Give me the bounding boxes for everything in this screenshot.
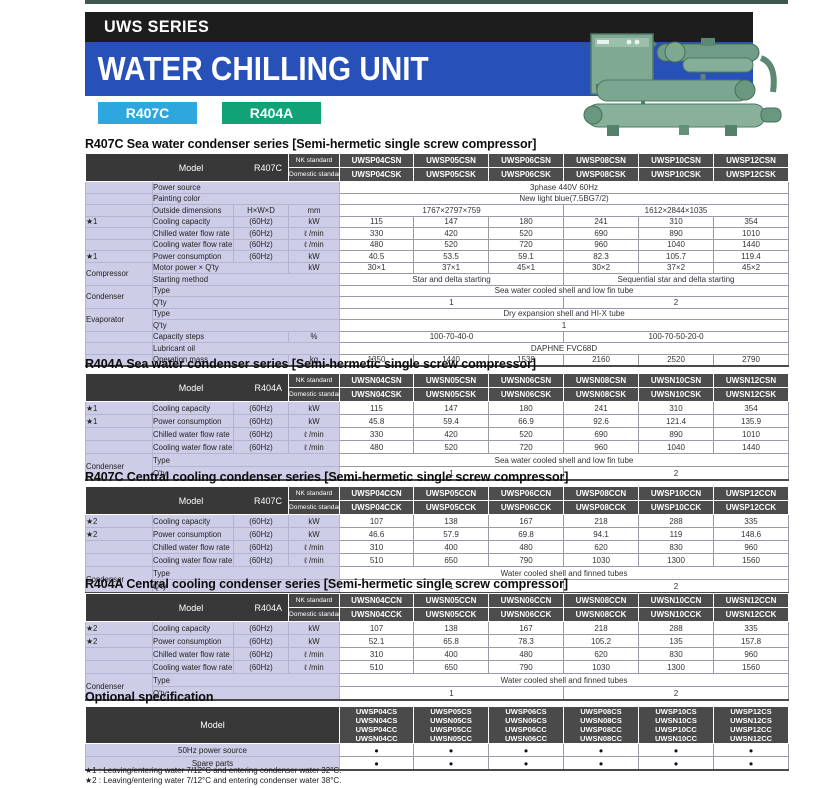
model-header-cell: Model bbox=[86, 707, 340, 744]
domestic-model-name: UWSP05CSK bbox=[414, 168, 489, 182]
spec-row: Cooling water flow rate(60Hz)ℓ /min48052… bbox=[86, 441, 789, 454]
group-cell bbox=[86, 331, 153, 343]
domestic-model-name: UWSN12CCK bbox=[714, 608, 789, 622]
spec-row: ★2Cooling capacity(60Hz)kW10713816721828… bbox=[86, 622, 789, 635]
domestic-model-name: UWSN12CSK bbox=[714, 388, 789, 402]
refrigerant-badge-r404a: R404A bbox=[222, 102, 321, 124]
row-label: Type bbox=[153, 454, 340, 467]
value-cell: 37×2 bbox=[639, 262, 714, 274]
value-cell: 310 bbox=[340, 648, 414, 661]
group-cell bbox=[86, 239, 153, 251]
value-cell: 69.8 bbox=[489, 528, 564, 541]
value-cell-span6: 1 bbox=[340, 320, 789, 332]
value-cell: 180 bbox=[489, 402, 564, 415]
model-code: UWSN12CC bbox=[714, 734, 788, 743]
spec-row: Chilled water flow rate(60Hz)ℓ /min31040… bbox=[86, 648, 789, 661]
row-label: Cooling water flow rate bbox=[153, 441, 234, 454]
unit-label: % bbox=[289, 331, 340, 343]
availability-dot: ● bbox=[564, 744, 639, 757]
footnote-marker: ★2 bbox=[86, 622, 153, 635]
model-code: UWSN10CS bbox=[639, 716, 713, 725]
group-cell bbox=[86, 343, 153, 355]
model-code: UWSN05CS bbox=[414, 716, 488, 725]
value-cell: 1040 bbox=[639, 239, 714, 251]
frequency-label: (60Hz) bbox=[234, 528, 289, 541]
value-cell: 107 bbox=[340, 622, 414, 635]
value-cell: 45×1 bbox=[489, 262, 564, 274]
spec-row: ★1Cooling capacity(60Hz)kW11514718024131… bbox=[86, 216, 789, 228]
nk-model-name: UWSN04CCN bbox=[340, 594, 414, 608]
availability-dot: ● bbox=[414, 757, 489, 771]
group-cell bbox=[86, 554, 153, 567]
model-code: UWSP10CS bbox=[639, 707, 713, 716]
group-cell bbox=[86, 441, 153, 454]
spec-row: Chilled water flow rate(60Hz)ℓ /min33042… bbox=[86, 428, 789, 441]
footnote-marker: ★1 bbox=[86, 402, 153, 415]
value-cell: 119 bbox=[639, 528, 714, 541]
section-title: R404A Central cooling condenser series [… bbox=[85, 577, 788, 591]
value-cell: 135.9 bbox=[714, 415, 789, 428]
group-cell bbox=[86, 182, 153, 194]
frequency-label: (60Hz) bbox=[234, 622, 289, 635]
unit-label: ℓ /min bbox=[289, 541, 340, 554]
value-cell: 115 bbox=[340, 402, 414, 415]
row-label: Cooling capacity bbox=[153, 402, 234, 415]
value-cell: 119.4 bbox=[714, 251, 789, 263]
unit-label: kW bbox=[289, 515, 340, 528]
unit-label: kW bbox=[289, 216, 340, 228]
domestic-model-name: UWSP12CSK bbox=[714, 168, 789, 182]
availability-dot: ● bbox=[564, 757, 639, 771]
model-code: UWSN08CC bbox=[564, 734, 638, 743]
badge-label: R404A bbox=[250, 105, 294, 121]
value-cell: 288 bbox=[639, 515, 714, 528]
optional-row: 50Hz power source●●●●●● bbox=[86, 744, 789, 757]
value-cell: 241 bbox=[564, 402, 639, 415]
domestic-model-name: UWSP08CCK bbox=[564, 501, 639, 515]
model-code: UWSP08CC bbox=[564, 725, 638, 734]
nk-model-name: UWSP04CCN bbox=[340, 487, 414, 501]
spec-row: Chilled water flow rate(60Hz)ℓ /min31040… bbox=[86, 541, 789, 554]
value-cell-span3: Sequential star and delta starting bbox=[564, 274, 789, 286]
section-title-text: R407C Central cooling condenser series bbox=[85, 470, 321, 484]
spec-table-host: ModelR404ANK standardUWSN04CSNUWSN05CSNU… bbox=[85, 373, 788, 481]
model-header-cell: ModelR407C bbox=[86, 154, 289, 182]
spec-table-host: ModelR407CNK standardUWSP04CSNUWSP05CSNU… bbox=[85, 153, 788, 367]
value-cell-span6: DAPHNE FVC68D bbox=[340, 343, 789, 355]
footnote-marker: ★1 bbox=[86, 415, 153, 428]
unit-label: kW bbox=[289, 622, 340, 635]
model-code: UWSN08CS bbox=[564, 716, 638, 725]
spec-row: ★1Power consumption(60Hz)kW45.859.466.99… bbox=[86, 415, 789, 428]
availability-dot: ● bbox=[489, 744, 564, 757]
model-header-cell: ModelR404A bbox=[86, 594, 289, 622]
page-content: UWS SERIES WATER CHILLING UNIT R407C R40… bbox=[85, 0, 788, 788]
value-cell: 135 bbox=[639, 635, 714, 648]
footnotes: ★1 : Leaving/entering water 7/12°C and e… bbox=[85, 766, 341, 785]
value-cell: 480 bbox=[489, 648, 564, 661]
value-cell: 310 bbox=[639, 402, 714, 415]
series-label: UWS SERIES bbox=[85, 17, 209, 37]
row-label: Cooling water flow rate bbox=[153, 661, 234, 674]
nk-model-name: UWSN12CSN bbox=[714, 374, 789, 388]
nk-standard-label: NK standard bbox=[289, 154, 340, 168]
footnote-marker: ★2 bbox=[86, 515, 153, 528]
refrigerant-label: R407C bbox=[254, 163, 282, 173]
value-cell: 59.1 bbox=[489, 251, 564, 263]
chiller-machine-illustration bbox=[584, 34, 781, 136]
value-cell: 960 bbox=[714, 648, 789, 661]
unit-label: kW bbox=[289, 635, 340, 648]
unit-label: ℓ /min bbox=[289, 441, 340, 454]
spec-row: CondenserTypeSea water cooled shell and … bbox=[86, 454, 789, 467]
availability-dot: ● bbox=[714, 757, 789, 771]
section-title: R404A Sea water condenser series [Semi-h… bbox=[85, 357, 788, 371]
spec-row: ★2Power consumption(60Hz)kW46.657.969.89… bbox=[86, 528, 789, 541]
nk-standard-label: NK standard bbox=[289, 594, 340, 608]
nk-model-name: UWSN05CSN bbox=[414, 374, 489, 388]
value-cell: 59.4 bbox=[414, 415, 489, 428]
spec-row: Power source3phase 440V 60Hz bbox=[86, 182, 789, 194]
footnote-2: ★2 : Leaving/entering water 7/12°C and e… bbox=[85, 776, 341, 786]
value-cell: 138 bbox=[414, 622, 489, 635]
value-cell-span6: Sea water cooled shell and low fin tube bbox=[340, 454, 789, 467]
section-title-bracket: [Semi-hermetic single screw compressor] bbox=[324, 577, 568, 591]
spec-row: Outside dimensionsH×W×Dmm1767×2797×75916… bbox=[86, 205, 789, 217]
group-cell bbox=[86, 228, 153, 240]
domestic-model-name: UWSN08CSK bbox=[564, 388, 639, 402]
optional-spec-table: ModelUWSP04CSUWSN04CSUWSP04CCUWSN04CCUWS… bbox=[85, 706, 789, 771]
option-label: 50Hz power source bbox=[86, 744, 340, 757]
row-label: Chilled water flow rate bbox=[153, 428, 234, 441]
model-code: UWSN06CS bbox=[489, 716, 563, 725]
unit-label: kW bbox=[289, 528, 340, 541]
spec-table-r407c: ModelR407CNK standardUWSP04CSNUWSP05CSNU… bbox=[85, 153, 789, 367]
availability-dot: ● bbox=[639, 757, 714, 771]
page-title: WATER CHILLING UNIT bbox=[85, 50, 429, 88]
model-label: Model bbox=[179, 496, 204, 506]
spec-row: ★1Power consumption(60Hz)kW40.553.559.18… bbox=[86, 251, 789, 263]
water-chiller-photo bbox=[583, 24, 790, 138]
model-code-group: UWSP05CSUWSN05CSUWSP05CCUWSN05CC bbox=[414, 707, 489, 744]
unit-label: kW bbox=[289, 251, 340, 263]
row-label: Power consumption bbox=[153, 251, 234, 263]
value-cell: 310 bbox=[639, 216, 714, 228]
value-cell: 1300 bbox=[639, 554, 714, 567]
model-header-cell: ModelR407C bbox=[86, 487, 289, 515]
spec-row: ★2Power consumption(60Hz)kW52.165.878.31… bbox=[86, 635, 789, 648]
row-label: Painting color bbox=[153, 193, 340, 205]
group-cell bbox=[86, 661, 153, 674]
domestic-model-name: UWSN04CCK bbox=[340, 608, 414, 622]
section-title-text: R404A Central cooling condenser series bbox=[85, 577, 320, 591]
frequency-label: H×W×D bbox=[234, 205, 289, 217]
spec-row: CompressorMotor power × Q'tykW30×137×145… bbox=[86, 262, 789, 274]
footnote-marker: ★1 bbox=[86, 251, 153, 263]
value-cell: 66.9 bbox=[489, 415, 564, 428]
value-cell: 1560 bbox=[714, 554, 789, 567]
model-header-cell: ModelR404A bbox=[86, 374, 289, 402]
value-cell-span3: 1767×2797×759 bbox=[340, 205, 564, 217]
section-optional-specification: Optional specification ModelUWSP04CSUWSN… bbox=[85, 690, 788, 771]
footnote-marker: ★1 bbox=[86, 216, 153, 228]
nk-model-name: UWSN04CSN bbox=[340, 374, 414, 388]
domestic-model-name: UWSN10CSK bbox=[639, 388, 714, 402]
frequency-label: (60Hz) bbox=[234, 441, 289, 454]
model-label: Model bbox=[179, 163, 204, 173]
value-cell: 30×2 bbox=[564, 262, 639, 274]
frequency-label: (60Hz) bbox=[234, 402, 289, 415]
availability-dot: ● bbox=[714, 744, 789, 757]
value-cell-span6: Dry expansion shell and HI-X tube bbox=[340, 308, 789, 320]
value-cell: 148.6 bbox=[714, 528, 789, 541]
nk-model-name: UWSP08CSN bbox=[564, 154, 639, 168]
section-title: Optional specification bbox=[85, 690, 788, 704]
row-label: Cooling capacity bbox=[153, 515, 234, 528]
refrigerant-label: R407C bbox=[254, 496, 282, 506]
model-code: UWSP12CC bbox=[714, 725, 788, 734]
spec-row: Cooling water flow rate(60Hz)ℓ /min51065… bbox=[86, 661, 789, 674]
section-r407c-central-cooling: R407C Central cooling condenser series [… bbox=[85, 470, 788, 594]
nk-model-name: UWSP06CSN bbox=[489, 154, 564, 168]
availability-dot: ● bbox=[639, 744, 714, 757]
value-cell: 37×1 bbox=[414, 262, 489, 274]
domestic-model-name: UWSP12CCK bbox=[714, 501, 789, 515]
unit-label: kW bbox=[289, 415, 340, 428]
spec-row: Q'ty1 bbox=[86, 320, 789, 332]
nk-model-name: UWSN08CCN bbox=[564, 594, 639, 608]
value-cell: 147 bbox=[414, 402, 489, 415]
value-cell-span3: 100-70-50-20-0 bbox=[564, 331, 789, 343]
value-cell: 690 bbox=[564, 428, 639, 441]
value-cell: 960 bbox=[564, 239, 639, 251]
value-cell: 400 bbox=[414, 541, 489, 554]
row-label: Lubricant oil bbox=[153, 343, 340, 355]
nk-standard-label: NK standard bbox=[289, 487, 340, 501]
value-cell: 1440 bbox=[714, 239, 789, 251]
value-cell: 107 bbox=[340, 515, 414, 528]
value-cell: 890 bbox=[639, 228, 714, 240]
availability-dot: ● bbox=[489, 757, 564, 771]
row-label: Capacity steps bbox=[153, 331, 289, 343]
domestic-model-name: UWSN05CCK bbox=[414, 608, 489, 622]
nk-standard-label: NK standard bbox=[289, 374, 340, 388]
unit-label: ℓ /min bbox=[289, 648, 340, 661]
value-cell: 46.6 bbox=[340, 528, 414, 541]
value-cell: 105.7 bbox=[639, 251, 714, 263]
frequency-label: (60Hz) bbox=[234, 415, 289, 428]
section-r407c-sea-water: R407C Sea water condenser series [Semi-h… bbox=[85, 137, 788, 367]
domestic-standard-label: Domestic standard bbox=[289, 168, 340, 182]
value-cell: 650 bbox=[414, 554, 489, 567]
value-cell: 650 bbox=[414, 661, 489, 674]
optional-table-host: ModelUWSP04CSUWSN04CSUWSP04CCUWSN04CCUWS… bbox=[85, 706, 788, 771]
nk-model-name: UWSN10CCN bbox=[639, 594, 714, 608]
nk-model-name: UWSP10CSN bbox=[639, 154, 714, 168]
section-title-bracket: [Semi-hermetic single screw compressor] bbox=[292, 137, 536, 151]
model-label: Model bbox=[179, 383, 204, 393]
value-cell: 720 bbox=[489, 239, 564, 251]
nk-model-name: UWSN05CCN bbox=[414, 594, 489, 608]
value-cell: 45.8 bbox=[340, 415, 414, 428]
row-label: Type bbox=[153, 308, 340, 320]
row-label: Q'ty bbox=[153, 297, 340, 309]
domestic-model-name: UWSP06CSK bbox=[489, 168, 564, 182]
unit-label: kW bbox=[289, 402, 340, 415]
value-cell: 400 bbox=[414, 648, 489, 661]
model-code: UWSN06CC bbox=[489, 734, 563, 743]
model-code: UWSP06CS bbox=[489, 707, 563, 716]
domestic-model-name: UWSN04CSK bbox=[340, 388, 414, 402]
row-label: Chilled water flow rate bbox=[153, 648, 234, 661]
frequency-label: (60Hz) bbox=[234, 661, 289, 674]
value-cell: 1010 bbox=[714, 428, 789, 441]
spec-row: ★2Cooling capacity(60Hz)kW10713816721828… bbox=[86, 515, 789, 528]
model-code: UWSP10CC bbox=[639, 725, 713, 734]
value-cell: 147 bbox=[414, 216, 489, 228]
spec-row: Cooling water flow rate(60Hz)ℓ /min48052… bbox=[86, 239, 789, 251]
value-cell: 354 bbox=[714, 216, 789, 228]
nk-model-name: UWSP05CCN bbox=[414, 487, 489, 501]
value-cell: 1010 bbox=[714, 228, 789, 240]
row-label: Cooling water flow rate bbox=[153, 239, 234, 251]
footnote-1: ★1 : Leaving/entering water 7/12°C and e… bbox=[85, 766, 341, 776]
section-title-bracket: [Semi-hermetic single screw compressor] bbox=[324, 470, 568, 484]
value-cell: 720 bbox=[489, 441, 564, 454]
value-cell: 790 bbox=[489, 661, 564, 674]
value-cell-span6: Sea water cooled shell and low fin tube bbox=[340, 285, 789, 297]
domestic-model-name: UWSP08CSK bbox=[564, 168, 639, 182]
value-cell-span3: 2 bbox=[564, 297, 789, 309]
nk-model-name: UWSN06CSN bbox=[489, 374, 564, 388]
availability-dot: ● bbox=[340, 757, 414, 771]
value-cell: 520 bbox=[414, 239, 489, 251]
value-cell: 138 bbox=[414, 515, 489, 528]
domestic-model-name: UWSP10CCK bbox=[639, 501, 714, 515]
nk-model-name: UWSN08CSN bbox=[564, 374, 639, 388]
frequency-label: (60Hz) bbox=[234, 648, 289, 661]
value-cell: 1300 bbox=[639, 661, 714, 674]
domestic-standard-label: Domestic standard bbox=[289, 501, 340, 515]
domestic-model-name: UWSN06CSK bbox=[489, 388, 564, 402]
row-label: Motor power × Q'ty bbox=[153, 262, 289, 274]
frequency-label: (60Hz) bbox=[234, 239, 289, 251]
value-cell: 218 bbox=[564, 622, 639, 635]
spec-row: ★1Cooling capacity(60Hz)kW11514718024131… bbox=[86, 402, 789, 415]
value-cell: 53.5 bbox=[414, 251, 489, 263]
unit-label: ℓ /min bbox=[289, 661, 340, 674]
value-cell: 1030 bbox=[564, 661, 639, 674]
value-cell: 330 bbox=[340, 428, 414, 441]
row-label: Cooling capacity bbox=[153, 622, 234, 635]
value-cell-span3: 1 bbox=[340, 297, 564, 309]
section-title-text: R404A Sea water condenser series bbox=[85, 357, 288, 371]
nk-model-name: UWSP04CSN bbox=[340, 154, 414, 168]
value-cell: 1440 bbox=[714, 441, 789, 454]
value-cell: 480 bbox=[340, 441, 414, 454]
row-label: Cooling capacity bbox=[153, 216, 234, 228]
frequency-label: (60Hz) bbox=[234, 541, 289, 554]
value-cell: 310 bbox=[340, 541, 414, 554]
domestic-model-name: UWSN06CCK bbox=[489, 608, 564, 622]
frequency-label: (60Hz) bbox=[234, 251, 289, 263]
row-label: Q'ty bbox=[153, 320, 340, 332]
footnote-marker: ★2 bbox=[86, 635, 153, 648]
row-label: Power consumption bbox=[153, 415, 234, 428]
value-cell-span3: Star and delta starting bbox=[340, 274, 564, 286]
value-cell: 510 bbox=[340, 554, 414, 567]
value-cell: 288 bbox=[639, 622, 714, 635]
row-label: Chilled water flow rate bbox=[153, 541, 234, 554]
value-cell: 690 bbox=[564, 228, 639, 240]
domestic-model-name: UWSP10CSK bbox=[639, 168, 714, 182]
domestic-model-name: UWSN10CCK bbox=[639, 608, 714, 622]
domestic-model-name: UWSN05CSK bbox=[414, 388, 489, 402]
nk-model-name: UWSN12CCN bbox=[714, 594, 789, 608]
value-cell: 65.8 bbox=[414, 635, 489, 648]
model-code-group: UWSP10CSUWSN10CSUWSP10CCUWSN10CC bbox=[639, 707, 714, 744]
spec-row: EvaporatorTypeDry expansion shell and HI… bbox=[86, 308, 789, 320]
domestic-model-name: UWSP05CCK bbox=[414, 501, 489, 515]
value-cell: 40.5 bbox=[340, 251, 414, 263]
value-cell: 167 bbox=[489, 515, 564, 528]
spec-table-host: ModelR404ANK standardUWSN04CCNUWSN05CCNU… bbox=[85, 593, 788, 701]
value-cell: 960 bbox=[564, 441, 639, 454]
model-code: UWSP06CC bbox=[489, 725, 563, 734]
value-cell: 45×2 bbox=[714, 262, 789, 274]
top-accent-strip bbox=[85, 0, 788, 4]
value-cell: 480 bbox=[340, 239, 414, 251]
value-cell-span6: 3phase 440V 60Hz bbox=[340, 182, 789, 194]
value-cell: 520 bbox=[489, 428, 564, 441]
spec-table-r404a: ModelR404ANK standardUWSN04CSNUWSN05CSNU… bbox=[85, 373, 789, 481]
spec-row: Lubricant oilDAPHNE FVC68D bbox=[86, 343, 789, 355]
value-cell: 330 bbox=[340, 228, 414, 240]
value-cell: 105.2 bbox=[564, 635, 639, 648]
model-code: UWSN10CC bbox=[639, 734, 713, 743]
unit-label: ℓ /min bbox=[289, 554, 340, 567]
model-code: UWSN04CC bbox=[340, 734, 413, 743]
nk-model-name: UWSP12CSN bbox=[714, 154, 789, 168]
model-code: UWSP04CC bbox=[340, 725, 413, 734]
value-cell: 620 bbox=[564, 541, 639, 554]
domestic-model-name: UWSP06CCK bbox=[489, 501, 564, 515]
row-label: Starting method bbox=[153, 274, 340, 286]
value-cell: 218 bbox=[564, 515, 639, 528]
group-cell bbox=[86, 193, 153, 205]
value-cell: 78.3 bbox=[489, 635, 564, 648]
nk-model-name: UWSP06CCN bbox=[489, 487, 564, 501]
value-cell: 57.9 bbox=[414, 528, 489, 541]
availability-dot: ● bbox=[340, 744, 414, 757]
value-cell: 157.8 bbox=[714, 635, 789, 648]
spec-row: Capacity steps%100-70-40-0100-70-50-20-0 bbox=[86, 331, 789, 343]
row-label: Type bbox=[153, 674, 340, 687]
nk-model-name: UWSP12CCN bbox=[714, 487, 789, 501]
value-cell: 94.1 bbox=[564, 528, 639, 541]
section-title: R407C Central cooling condenser series [… bbox=[85, 470, 788, 484]
value-cell: 121.4 bbox=[639, 415, 714, 428]
domestic-model-name: UWSN08CCK bbox=[564, 608, 639, 622]
model-label: Model bbox=[179, 603, 204, 613]
value-cell: 830 bbox=[639, 541, 714, 554]
model-code: UWSP04CS bbox=[340, 707, 413, 716]
catalog-page: UWS SERIES WATER CHILLING UNIT R407C R40… bbox=[0, 0, 830, 788]
model-code: UWSP08CS bbox=[564, 707, 638, 716]
group-label: Evaporator bbox=[86, 308, 153, 331]
row-label: Chilled water flow rate bbox=[153, 228, 234, 240]
row-label: Cooling water flow rate bbox=[153, 554, 234, 567]
